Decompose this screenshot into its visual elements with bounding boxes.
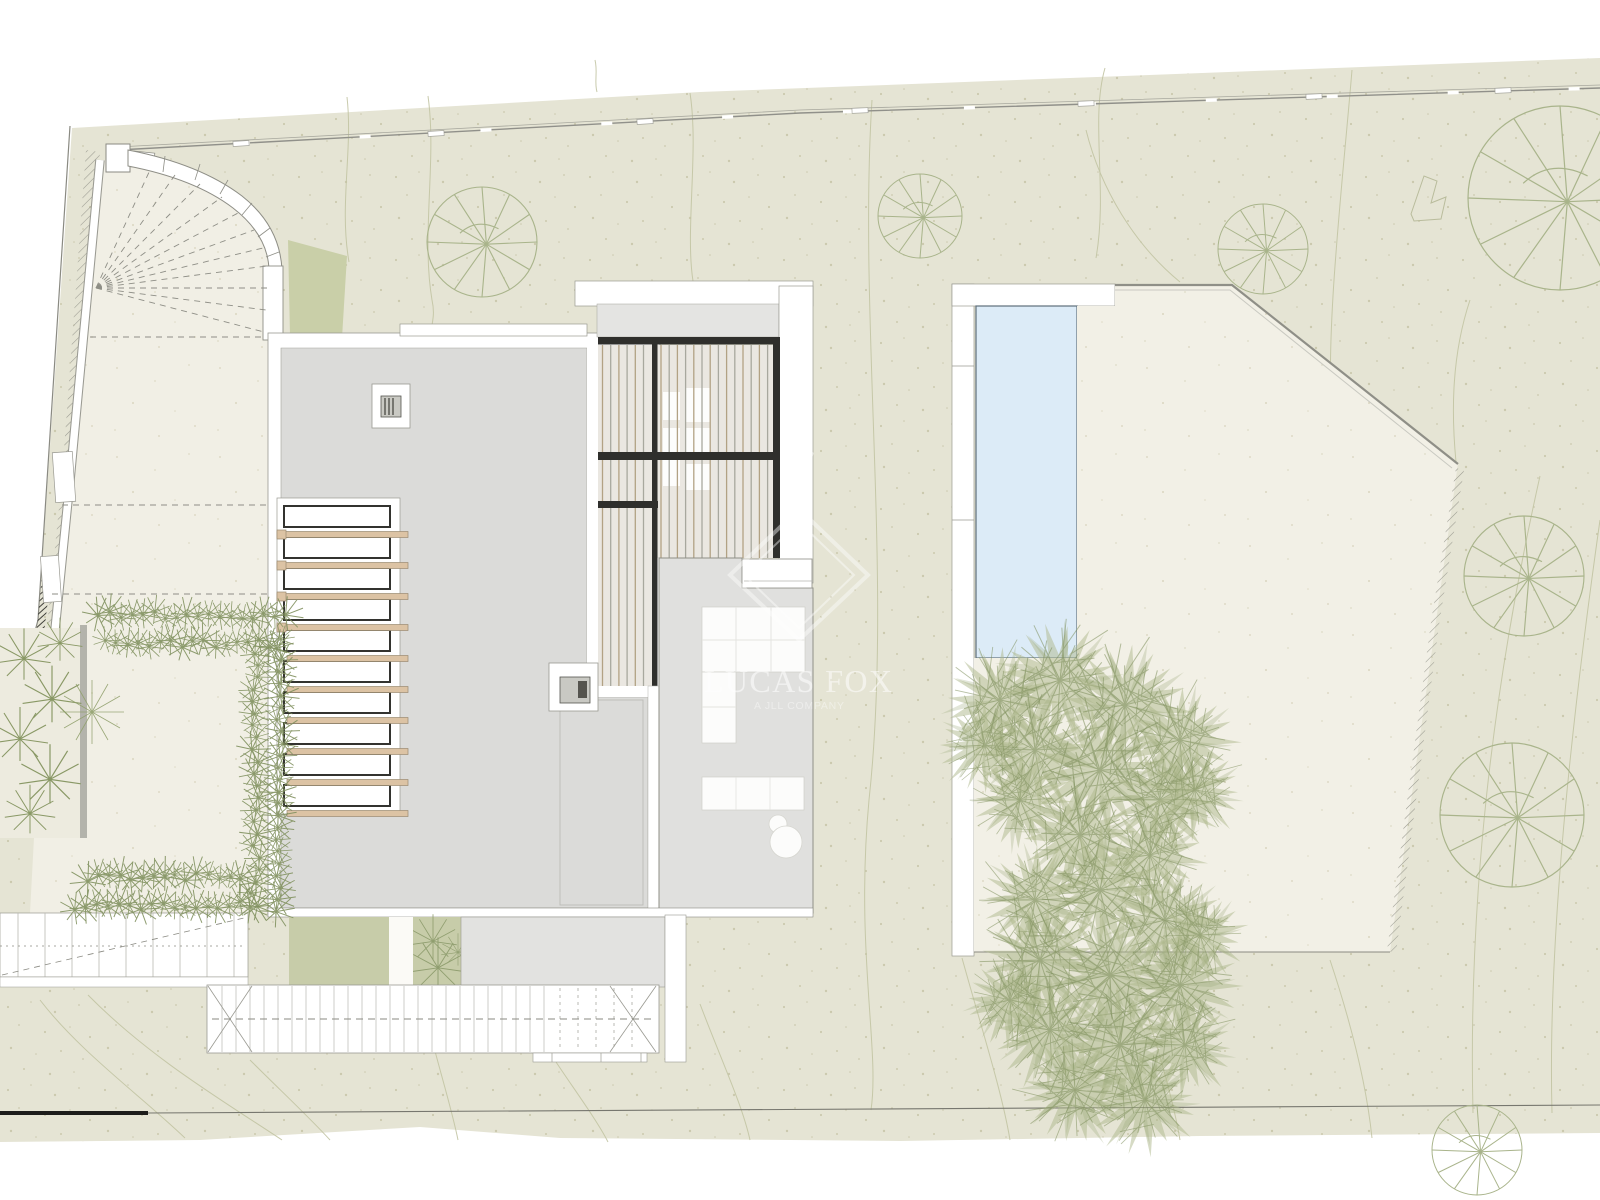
svg-text:A JLL COMPANY: A JLL COMPANY (754, 700, 846, 712)
svg-text:LUCAS FOX: LUCAS FOX (704, 663, 896, 699)
